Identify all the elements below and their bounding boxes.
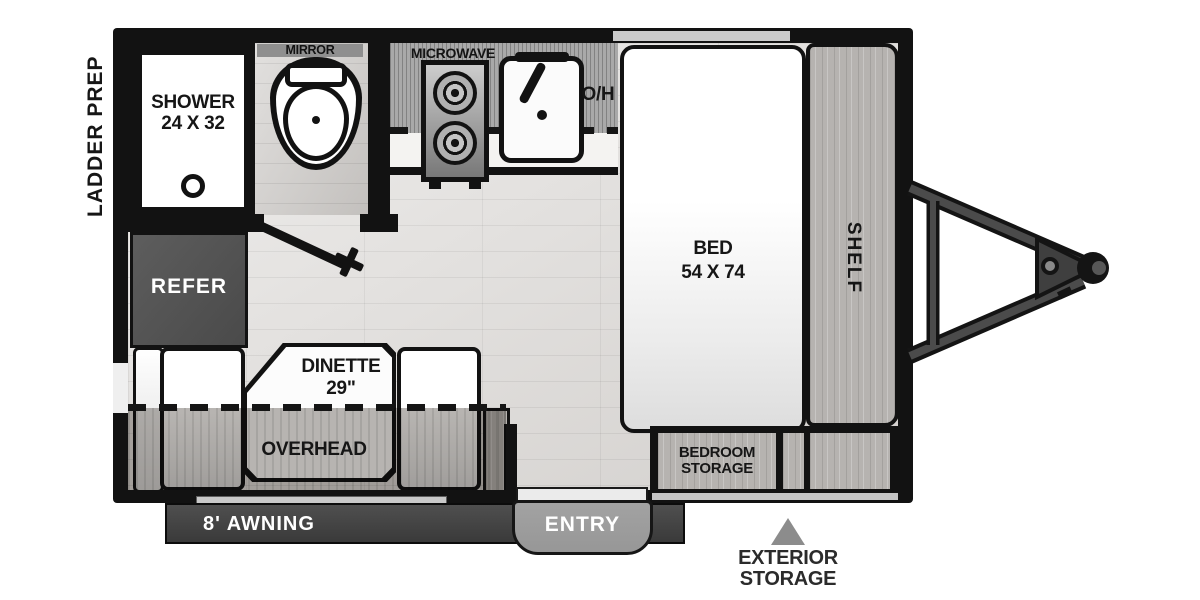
overhead-label: OVERHEAD [250, 440, 378, 461]
stove-icon [421, 60, 489, 182]
oh-label: O/H [576, 85, 620, 106]
exterior-storage-line2: STORAGE [740, 568, 836, 590]
bed-label-line2: 54 X 74 [681, 262, 744, 283]
dinette-label: DINETTE 29" [292, 356, 390, 400]
hitch-icon [900, 163, 1115, 378]
bedroom-storage-label: BEDROOM STORAGE [658, 445, 776, 477]
bed-window [613, 31, 790, 41]
bedroom-storage-line2: STORAGE [681, 460, 753, 477]
toilet-icon [270, 57, 362, 170]
exterior-storage-arrow-icon [771, 518, 805, 545]
exterior-storage-line1: EXTERIOR [738, 547, 838, 569]
storage-box-small [780, 430, 807, 492]
left-window [113, 363, 128, 413]
shower-label-line2: 24 X 32 [161, 113, 224, 134]
sink-icon [499, 56, 584, 163]
toilet-drain-dot [312, 116, 320, 124]
shower-label: SHOWER 24 X 32 [142, 93, 244, 135]
rv-floorplan: LADDER PREP SHOWER 24 X 32 MIRROR MICROW… [0, 0, 1200, 600]
bed: BED 54 X 74 [620, 45, 806, 433]
shelf: SHELF [806, 43, 899, 427]
awning-label: 8' AWNING [203, 513, 363, 535]
entry-step: ENTRY [512, 500, 653, 555]
storage-box-right [807, 430, 893, 492]
refer-label: REFER [133, 275, 245, 298]
bed-label-line1: BED [693, 238, 732, 259]
sink-drain-dot [537, 110, 547, 120]
refrigerator: REFER [130, 232, 248, 348]
bedroom-storage-line1: BEDROOM [679, 444, 755, 461]
bathroom-wall-vertical [368, 28, 390, 228]
exterior-storage-label: EXTERIOR STORAGE [703, 548, 873, 590]
shelf-label: SHELF [842, 221, 863, 293]
burner-icon [433, 71, 477, 115]
bottom-rail [652, 493, 898, 500]
shower-stall: SHOWER 24 X 32 [140, 53, 246, 209]
faucet-icon [518, 61, 547, 104]
mirror-label: MIRROR [257, 44, 363, 58]
ladder-prep-label: LADDER PREP [84, 36, 110, 236]
bathroom-wall-bottom [128, 214, 264, 232]
dinette-label-line1: DINETTE [301, 356, 380, 377]
burner-icon [433, 121, 477, 165]
shower-label-line1: SHOWER [151, 92, 235, 113]
dinette-overhead-dash [128, 404, 506, 411]
bed-label: BED 54 X 74 [624, 237, 802, 285]
shower-drain-icon [181, 174, 205, 198]
bedroom-storage-box: BEDROOM STORAGE [655, 430, 779, 492]
entry-label: ENTRY [515, 513, 650, 536]
bathroom-wall-foot [360, 214, 398, 232]
dinette-label-line2: 29" [326, 378, 355, 399]
